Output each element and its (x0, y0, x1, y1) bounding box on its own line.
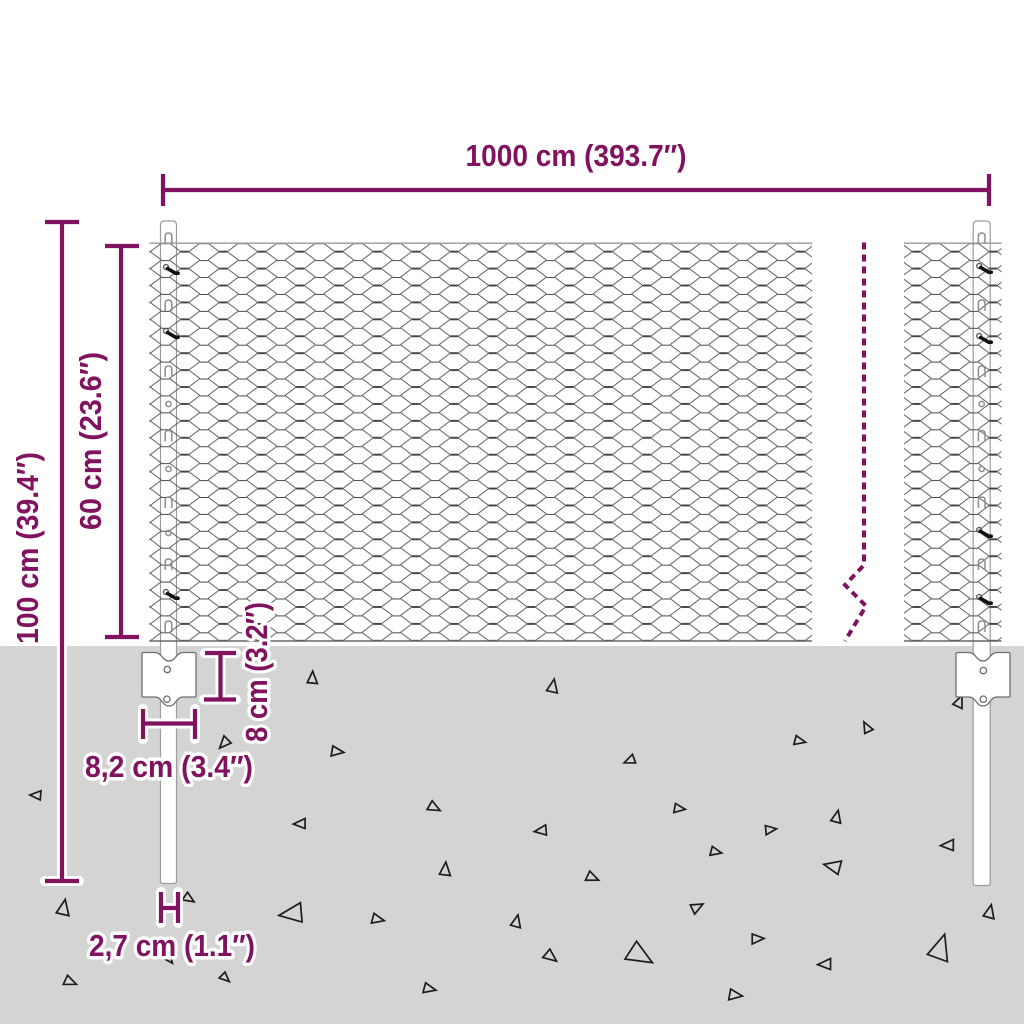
svg-text:8,2 cm (3.4″): 8,2 cm (3.4″) (85, 749, 253, 784)
svg-text:100 cm (39.4″): 100 cm (39.4″) (10, 452, 45, 644)
svg-text:60 cm (23.6″): 60 cm (23.6″) (73, 352, 108, 530)
svg-text:8 cm (3.2″): 8 cm (3.2″) (239, 602, 274, 742)
svg-text:2,7 cm (1.1″): 2,7 cm (1.1″) (89, 928, 255, 963)
svg-text:1000 cm (393.7″): 1000 cm (393.7″) (466, 138, 687, 173)
